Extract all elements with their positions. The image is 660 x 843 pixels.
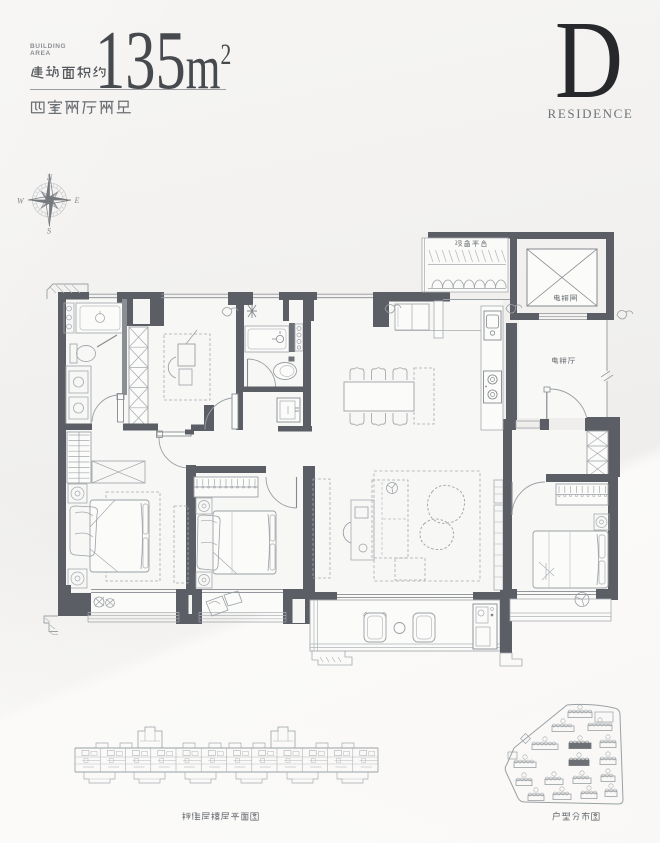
svg-text:N: N — [46, 172, 54, 182]
svg-text:E: E — [74, 196, 80, 205]
svg-text:W: W — [17, 197, 25, 206]
svg-text:S: S — [47, 226, 52, 236]
